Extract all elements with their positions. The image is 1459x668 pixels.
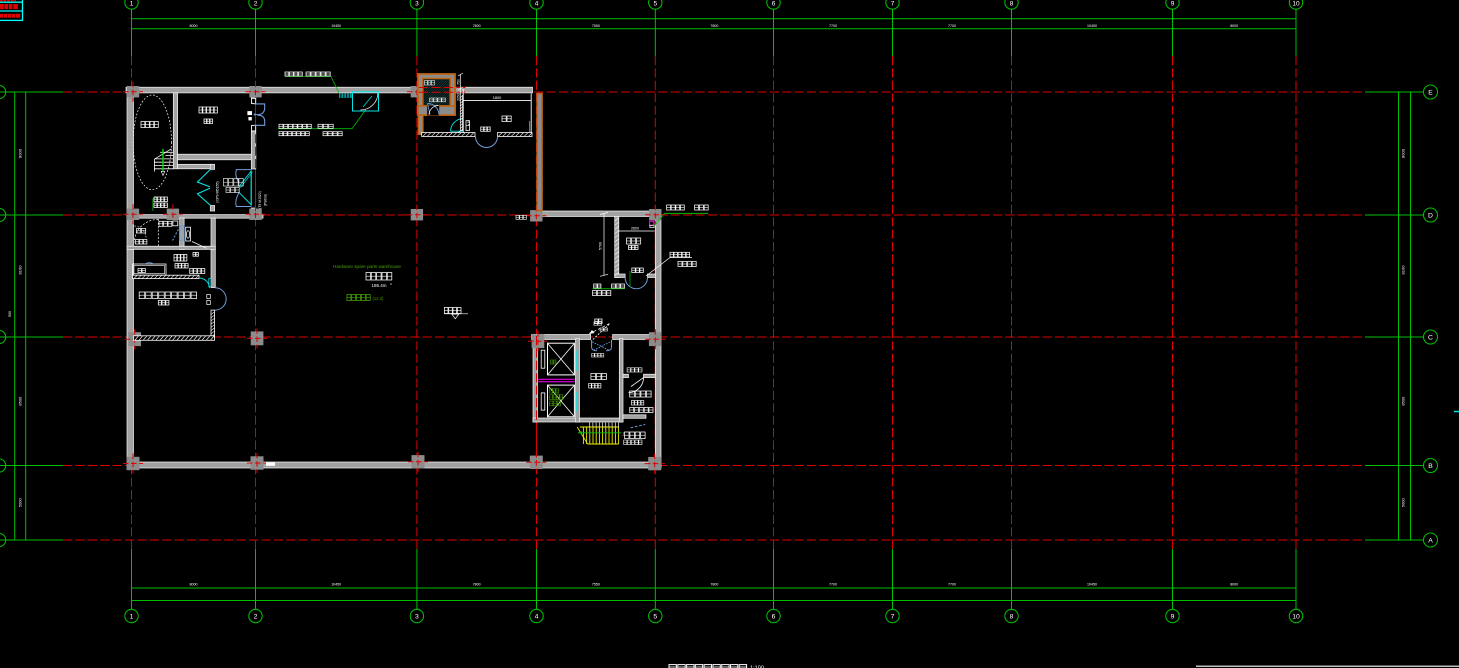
svg-text:8: 8: [1010, 1, 1014, 8]
svg-text:2250: 2250: [457, 93, 461, 101]
svg-text:4: 4: [535, 1, 539, 8]
svg-text:3: 3: [415, 1, 419, 8]
svg-text:1: 1: [130, 613, 134, 620]
svg-text:10450: 10450: [331, 582, 341, 586]
svg-text:5: 5: [653, 1, 657, 8]
svg-text:(12.2): (12.2): [373, 296, 385, 301]
svg-text:7550: 7550: [592, 24, 600, 28]
svg-text:7800: 7800: [473, 582, 481, 586]
svg-text:4: 4: [535, 613, 539, 620]
svg-text:6: 6: [772, 1, 776, 8]
svg-text:10450: 10450: [1087, 24, 1097, 28]
svg-text:7: 7: [891, 1, 895, 8]
svg-text:C: C: [1428, 334, 1433, 341]
svg-text:5: 5: [653, 613, 657, 620]
svg-text:(PS60d): (PS60d): [263, 194, 267, 206]
svg-text:8000: 8000: [1230, 582, 1238, 586]
svg-text:Hardware spare parts warehouse: Hardware spare parts warehouse: [333, 264, 401, 269]
svg-text:5000: 5000: [1401, 497, 1406, 507]
svg-text:7800: 7800: [473, 24, 481, 28]
svg-text:186.4m: 186.4m: [371, 283, 386, 288]
svg-text:7: 7: [891, 613, 895, 620]
svg-text:9: 9: [1171, 1, 1175, 8]
svg-text:10: 10: [1292, 613, 1300, 620]
svg-text:2: 2: [254, 1, 258, 8]
svg-text:500: 500: [8, 311, 12, 317]
svg-text:B: B: [1428, 463, 1433, 470]
svg-text:10450: 10450: [1087, 582, 1097, 586]
svg-text:750: 750: [457, 79, 461, 85]
svg-text:5000: 5000: [18, 497, 23, 507]
svg-text:7700: 7700: [948, 582, 956, 586]
svg-text:3: 3: [415, 613, 419, 620]
svg-text:2: 2: [254, 613, 258, 620]
svg-text:8000: 8000: [190, 582, 198, 586]
svg-text:8500: 8500: [18, 396, 23, 406]
svg-text:7700: 7700: [829, 24, 837, 28]
svg-text:8000: 8000: [18, 148, 23, 158]
svg-text:8: 8: [1010, 613, 1014, 620]
svg-text:8500: 8500: [1401, 396, 1406, 406]
svg-text:10450: 10450: [331, 24, 341, 28]
svg-text:5700: 5700: [599, 242, 603, 250]
svg-text:1800: 1800: [493, 96, 501, 100]
svg-text:7700: 7700: [829, 582, 837, 586]
svg-text:(CP9 M5155): (CP9 M5155): [216, 181, 220, 202]
svg-text:1: 1: [130, 1, 134, 8]
svg-text:9: 9: [1171, 613, 1175, 620]
svg-text:8100: 8100: [1401, 265, 1406, 275]
svg-text:7800: 7800: [710, 24, 718, 28]
svg-text:7700: 7700: [948, 24, 956, 28]
svg-text:2600: 2600: [631, 227, 639, 231]
svg-text:8000: 8000: [190, 24, 198, 28]
svg-text:8000: 8000: [1401, 148, 1406, 158]
svg-text:10: 10: [1292, 1, 1300, 8]
svg-text:A: A: [1428, 537, 1433, 544]
svg-text:(T9 M1520): (T9 M1520): [258, 191, 262, 209]
svg-text:8000: 8000: [1230, 24, 1238, 28]
svg-text:D: D: [1428, 212, 1433, 219]
svg-text:7550: 7550: [592, 582, 600, 586]
svg-text:E: E: [1428, 89, 1433, 96]
svg-text:6: 6: [772, 613, 776, 620]
svg-text:8100: 8100: [18, 265, 23, 275]
svg-text:7800: 7800: [710, 582, 718, 586]
svg-text:a R: a R: [467, 120, 471, 126]
